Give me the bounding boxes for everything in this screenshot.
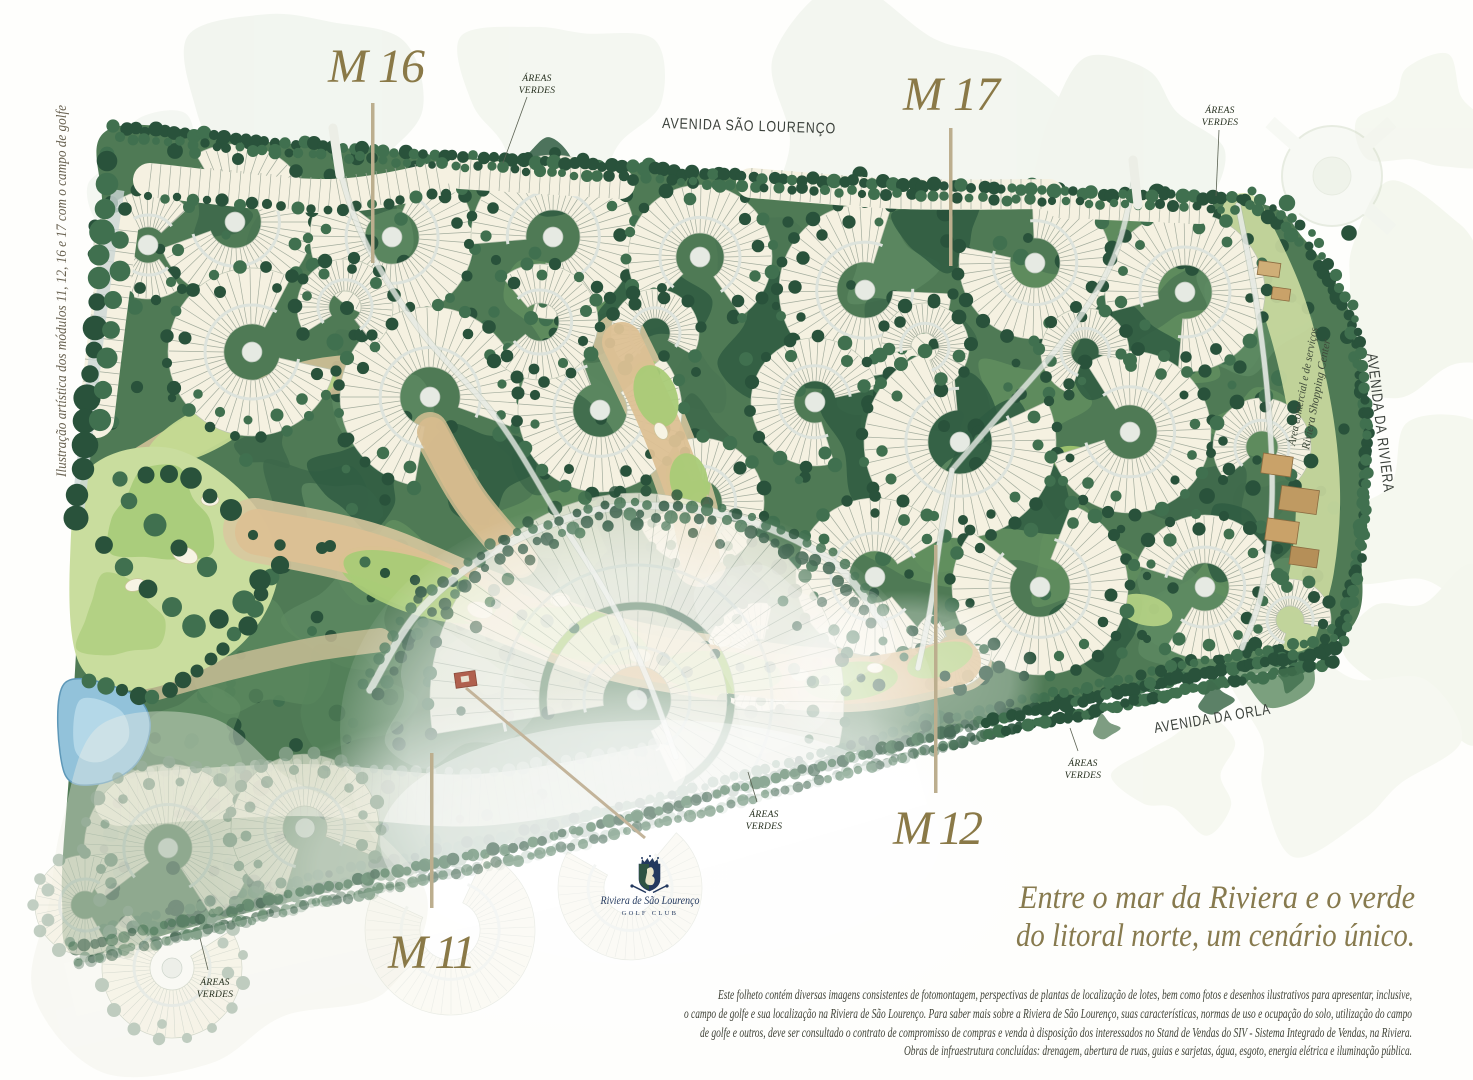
svg-text:M 12: M 12 bbox=[892, 802, 985, 855]
svg-text:Obras de infraestrutura conclu: Obras de infraestrutura concluídas: dren… bbox=[904, 1044, 1412, 1059]
svg-text:M 16: M 16 bbox=[327, 40, 427, 93]
svg-text:Entre o mar da Riviera e o ver: Entre o mar da Riviera e o verde bbox=[1018, 880, 1415, 916]
svg-text:M 11: M 11 bbox=[387, 926, 478, 979]
svg-text:ÁREAS: ÁREAS bbox=[199, 976, 229, 988]
svg-text:VERDES: VERDES bbox=[746, 822, 783, 832]
svg-text:do litoral norte, um cenário ú: do litoral norte, um cenário único. bbox=[1016, 918, 1415, 954]
svg-text:ÁREAS: ÁREAS bbox=[1204, 104, 1234, 116]
svg-text:GOLF CLUB: GOLF CLUB bbox=[622, 910, 679, 917]
svg-text:ÁREAS: ÁREAS bbox=[748, 808, 778, 820]
svg-text:Este folheto contém diversas i: Este folheto contém diversas imagens con… bbox=[717, 988, 1412, 1003]
svg-text:Ilustração artística dos módul: Ilustração artística dos módulos 11, 12,… bbox=[54, 105, 70, 478]
svg-text:o campo de golfe e sua localiz: o campo de golfe e sua localização na Ri… bbox=[684, 1007, 1412, 1022]
svg-text:Riviera de São Lourenço: Riviera de São Lourenço bbox=[600, 895, 700, 907]
svg-text:de golfe e outros, deve ser co: de golfe e outros, deve ser consultado o… bbox=[700, 1026, 1412, 1041]
svg-text:M 17: M 17 bbox=[902, 68, 1002, 121]
svg-text:VERDES: VERDES bbox=[1065, 771, 1102, 781]
svg-text:ÁREAS: ÁREAS bbox=[521, 72, 551, 84]
svg-text:ÁREAS: ÁREAS bbox=[1067, 757, 1097, 769]
svg-text:VERDES: VERDES bbox=[519, 86, 556, 96]
svg-text:VERDES: VERDES bbox=[197, 990, 234, 1000]
svg-text:VERDES: VERDES bbox=[1202, 118, 1239, 128]
